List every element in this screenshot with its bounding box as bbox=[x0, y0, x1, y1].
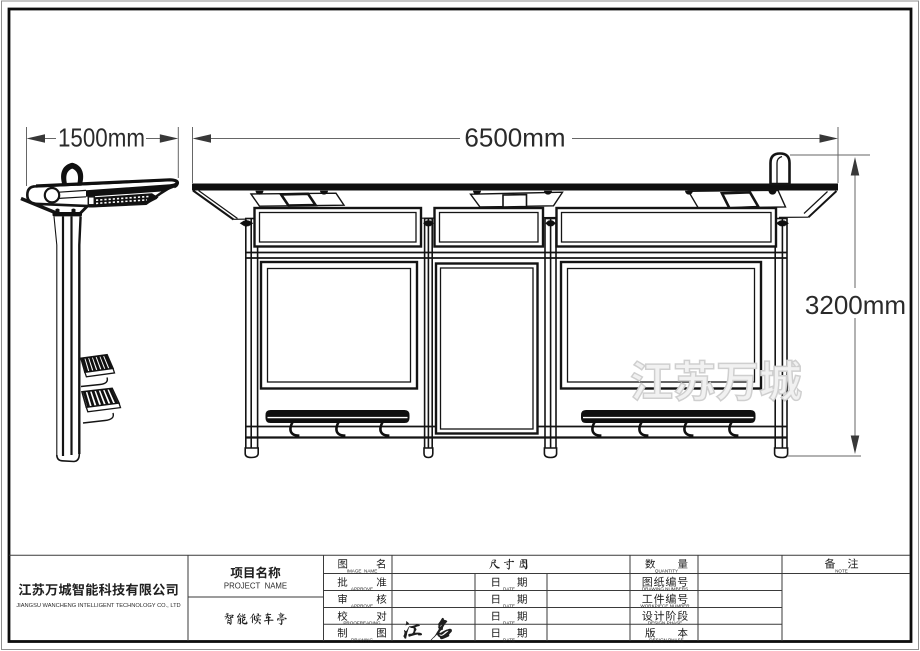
svg-text:DATE: DATE bbox=[503, 587, 515, 592]
svg-text:DATE: DATE bbox=[503, 621, 515, 626]
svg-text:DRAWING NUMBERS: DRAWING NUMBERS bbox=[642, 587, 688, 592]
svg-text:DESIGN PHASE: DESIGN PHASE bbox=[648, 621, 682, 626]
svg-text:3200mm: 3200mm bbox=[805, 290, 906, 320]
svg-text:6500mm: 6500mm bbox=[464, 123, 565, 153]
svg-text:1500mm: 1500mm bbox=[58, 123, 145, 153]
svg-text:IMAGE NAME: IMAGE NAME bbox=[347, 568, 378, 573]
svg-text:PROJECT NAME: PROJECT NAME bbox=[224, 582, 287, 591]
svg-text:NOTE: NOTE bbox=[835, 568, 848, 573]
svg-text:DATE: DATE bbox=[503, 637, 515, 642]
svg-text:PROOFREADING: PROOFREADING bbox=[343, 621, 381, 626]
svg-text:DATE: DATE bbox=[503, 604, 515, 609]
svg-text:APPROVE: APPROVE bbox=[351, 587, 373, 592]
svg-text:DESIGN PHASE: DESIGN PHASE bbox=[649, 637, 683, 642]
svg-text:QUANTITY: QUANTITY bbox=[655, 568, 678, 573]
svg-text:JIANGSU WANCHENG INTELLIGENT T: JIANGSU WANCHENG INTELLIGENT TECHNOLOGY … bbox=[16, 603, 180, 609]
svg-text:APPROVE: APPROVE bbox=[351, 604, 373, 609]
svg-text:WORKPIECE NUMBER: WORKPIECE NUMBER bbox=[640, 604, 690, 609]
svg-text:DRAWING: DRAWING bbox=[351, 637, 373, 642]
